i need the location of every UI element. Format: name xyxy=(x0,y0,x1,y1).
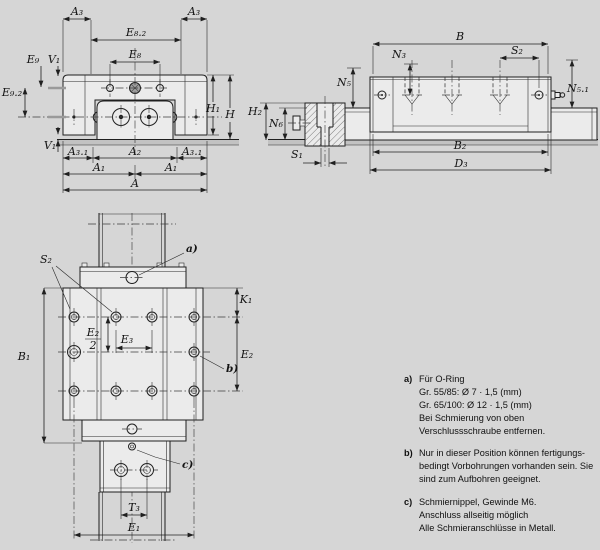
note-b: b) Nur in dieser Position können fertigu… xyxy=(404,448,593,484)
side-view: B N₃ S₂ N₅ N₅.₁ H₂ N₆ S₁ xyxy=(247,30,598,174)
dim-label-a3-left: A₃ xyxy=(70,5,83,18)
footnotes: a) Für O-Ring Gr. 55/85: Ø 7 · 1,5 (mm) … xyxy=(404,374,593,533)
dim-label-b2: B₂ xyxy=(453,139,467,152)
note-b-tag: b) xyxy=(404,448,413,458)
svg-text:Anschluss allseitig möglich: Anschluss allseitig möglich xyxy=(419,510,528,520)
dim-label-v1-bottom: V₁ xyxy=(44,139,56,152)
dim-label-b: B xyxy=(455,30,464,43)
dim-label-s1: S₁ xyxy=(291,148,303,161)
svg-text:Gr. 55/85: Ø 7 · 1,5 (mm): Gr. 55/85: Ø 7 · 1,5 (mm) xyxy=(419,387,522,397)
endcap-plan-bottom xyxy=(82,420,186,441)
svg-text:E₂: E₂ xyxy=(86,326,99,339)
svg-text:Verschlussschraube entfernen.: Verschlussschraube entfernen. xyxy=(419,426,545,436)
svg-text:Für O-Ring: Für O-Ring xyxy=(419,374,464,384)
dim-label-a1-right: A₁ xyxy=(164,161,177,174)
dim-label-e2: E₂ xyxy=(240,348,253,361)
note-c-tag: c) xyxy=(404,497,412,507)
svg-text:bedingt Vorbohrungen vorhanden: bedingt Vorbohrungen vorhanden sein. Sie xyxy=(419,461,593,471)
dim-label-k1: K₁ xyxy=(239,293,253,306)
svg-text:Schmiernippel, Gewinde M6.: Schmiernippel, Gewinde M6. xyxy=(419,497,536,507)
grease-nipple-icon xyxy=(551,91,565,99)
dim-label-e8: E₈ xyxy=(128,48,142,61)
dim-label-s2-plan: S₂ xyxy=(40,253,52,266)
dim-label-a1-left: A₁ xyxy=(92,161,105,174)
dim-label-n6: N₆ xyxy=(268,117,284,130)
technical-drawing-page: A₃ A₃ E₈.₂ E₈ E₉ V₁ E₉.₂ V₁ H₁ H xyxy=(0,0,600,550)
note-c: c) Schmiernippel, Gewinde M6. Anschluss … xyxy=(404,497,556,533)
dim-label-v1-top: V₁ xyxy=(48,53,60,66)
svg-text:Bei Schmierung von oben: Bei Schmierung von oben xyxy=(419,413,524,423)
dim-label-a: A xyxy=(130,177,139,190)
dim-label-a31-right: A₃.₁ xyxy=(181,145,202,158)
top-view: S₂ a) K₁ E₂ b) B₁ E₂ 2 xyxy=(17,213,253,543)
technical-drawing: A₃ A₃ E₈.₂ E₈ E₉ V₁ E₉.₂ V₁ H₁ H xyxy=(0,0,600,550)
svg-text:Gr. 65/100: Ø 12 · 1,5 (mm): Gr. 65/100: Ø 12 · 1,5 (mm) xyxy=(419,400,532,410)
svg-text:Nur in dieser Position können: Nur in dieser Position können fertigungs… xyxy=(419,448,585,458)
endcap-plan-top xyxy=(80,263,186,288)
dim-label-h1: H₁ xyxy=(205,102,220,115)
svg-text:2: 2 xyxy=(89,339,97,352)
dim-label-e82: E₈.₂ xyxy=(125,26,146,39)
dim-label-d3: D₃ xyxy=(453,157,467,170)
callout-a-label: a) xyxy=(186,243,198,255)
dim-label-h2: H₂ xyxy=(247,105,262,118)
svg-text:Alle Schmieranschlüsse in Meta: Alle Schmieranschlüsse in Metall. xyxy=(419,523,556,533)
dim-label-t3: T₃ xyxy=(128,501,140,514)
dim-label-e1: E₁ xyxy=(127,521,140,534)
dim-label-e3: E₃ xyxy=(120,333,133,346)
callout-b-label: b) xyxy=(226,363,238,375)
dim-label-s2-side: S₂ xyxy=(511,44,523,57)
dim-label-e9: E₉ xyxy=(26,53,40,66)
svg-text:sind zum Aufbohren geeignet.: sind zum Aufbohren geeignet. xyxy=(419,474,541,484)
dim-label-h: H xyxy=(224,108,235,121)
callout-c-label: c) xyxy=(182,459,193,471)
dim-label-a31-left: A₃.₁ xyxy=(67,145,88,158)
lube-adapter-plan xyxy=(100,441,170,492)
dim-label-n51: N₅.₁ xyxy=(566,82,589,95)
dim-label-n3: N₃ xyxy=(391,48,406,61)
dim-label-b1: B₁ xyxy=(17,350,31,363)
front-view: A₃ A₃ E₈.₂ E₈ E₉ V₁ E₉.₂ V₁ H₁ H xyxy=(1,5,239,193)
dim-label-a2: A₂ xyxy=(128,145,141,158)
note-a: a) Für O-Ring Gr. 55/85: Ø 7 · 1,5 (mm) … xyxy=(404,374,545,436)
runner-block-plan xyxy=(63,288,203,420)
dim-label-n5: N₅ xyxy=(336,76,352,89)
dim-label-a3-right: A₃ xyxy=(187,5,200,18)
note-a-tag: a) xyxy=(404,374,412,384)
dim-label-e92: E₉.₂ xyxy=(1,86,22,99)
runner-block-side xyxy=(370,77,565,132)
